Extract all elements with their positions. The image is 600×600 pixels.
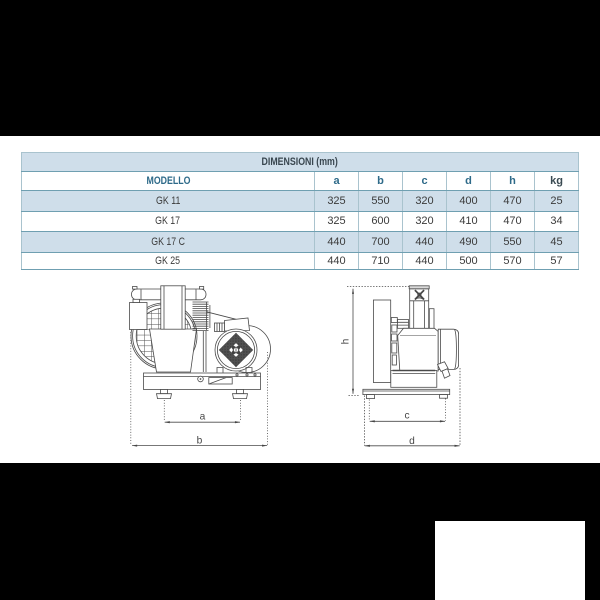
svg-text:c: c xyxy=(404,411,409,422)
svg-text:a: a xyxy=(200,411,206,422)
svg-text:b: b xyxy=(197,436,203,447)
svg-text:d: d xyxy=(409,436,415,447)
svg-text:h: h xyxy=(341,339,352,345)
